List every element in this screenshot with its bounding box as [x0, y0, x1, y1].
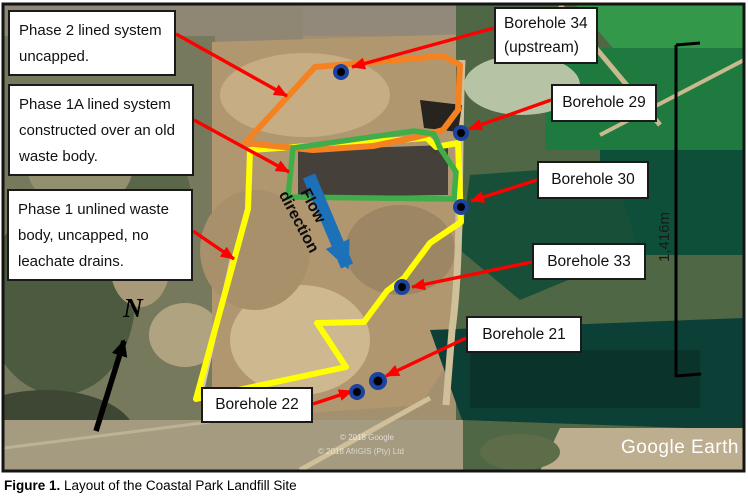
caption-prefix: Figure 1. — [4, 478, 60, 493]
borehole-30-label-box: Borehole 30 — [537, 161, 649, 199]
figure-caption: Figure 1. Layout of the Coastal Park Lan… — [4, 478, 297, 493]
north-label: N — [122, 293, 144, 323]
copyright-afrigis: © 2018 AfriGIS (Pty) Ltd — [318, 447, 404, 456]
borehole-33-marker — [394, 279, 410, 295]
borehole-34-label-box: Borehole 34 (upstream) — [494, 7, 598, 64]
borehole-33-label-box: Borehole 33 — [532, 243, 646, 280]
scale-label: 1,416m — [656, 212, 673, 262]
borehole-21-marker — [369, 372, 387, 390]
borehole-34-upstream: (upstream) — [504, 36, 579, 60]
caption-text: Layout of the Coastal Park Landfill Site — [60, 478, 296, 493]
borehole-34-marker — [333, 64, 349, 80]
borehole-29-marker — [453, 125, 469, 141]
borehole-21-label-box: Borehole 21 — [466, 316, 582, 353]
borehole-30-marker — [453, 199, 469, 215]
phase1-label-box: Phase 1 unlined waste body, uncapped, no… — [7, 189, 193, 281]
google-earth-watermark: Google Earth — [621, 437, 739, 458]
copyright-google: © 2018 Google — [340, 433, 394, 442]
phase2-label-box: Phase 2 lined system uncapped. — [8, 10, 176, 76]
phase1a-label-box: Phase 1A lined system constructed over a… — [8, 84, 194, 176]
borehole-22-marker — [349, 384, 365, 400]
borehole-34-name: Borehole 34 — [504, 12, 588, 36]
figure-1-coastal-park-landfill: Flow direction N 1,416m — [0, 0, 748, 502]
borehole-29-label-box: Borehole 29 — [551, 84, 657, 122]
borehole-22-label-box: Borehole 22 — [201, 387, 313, 423]
